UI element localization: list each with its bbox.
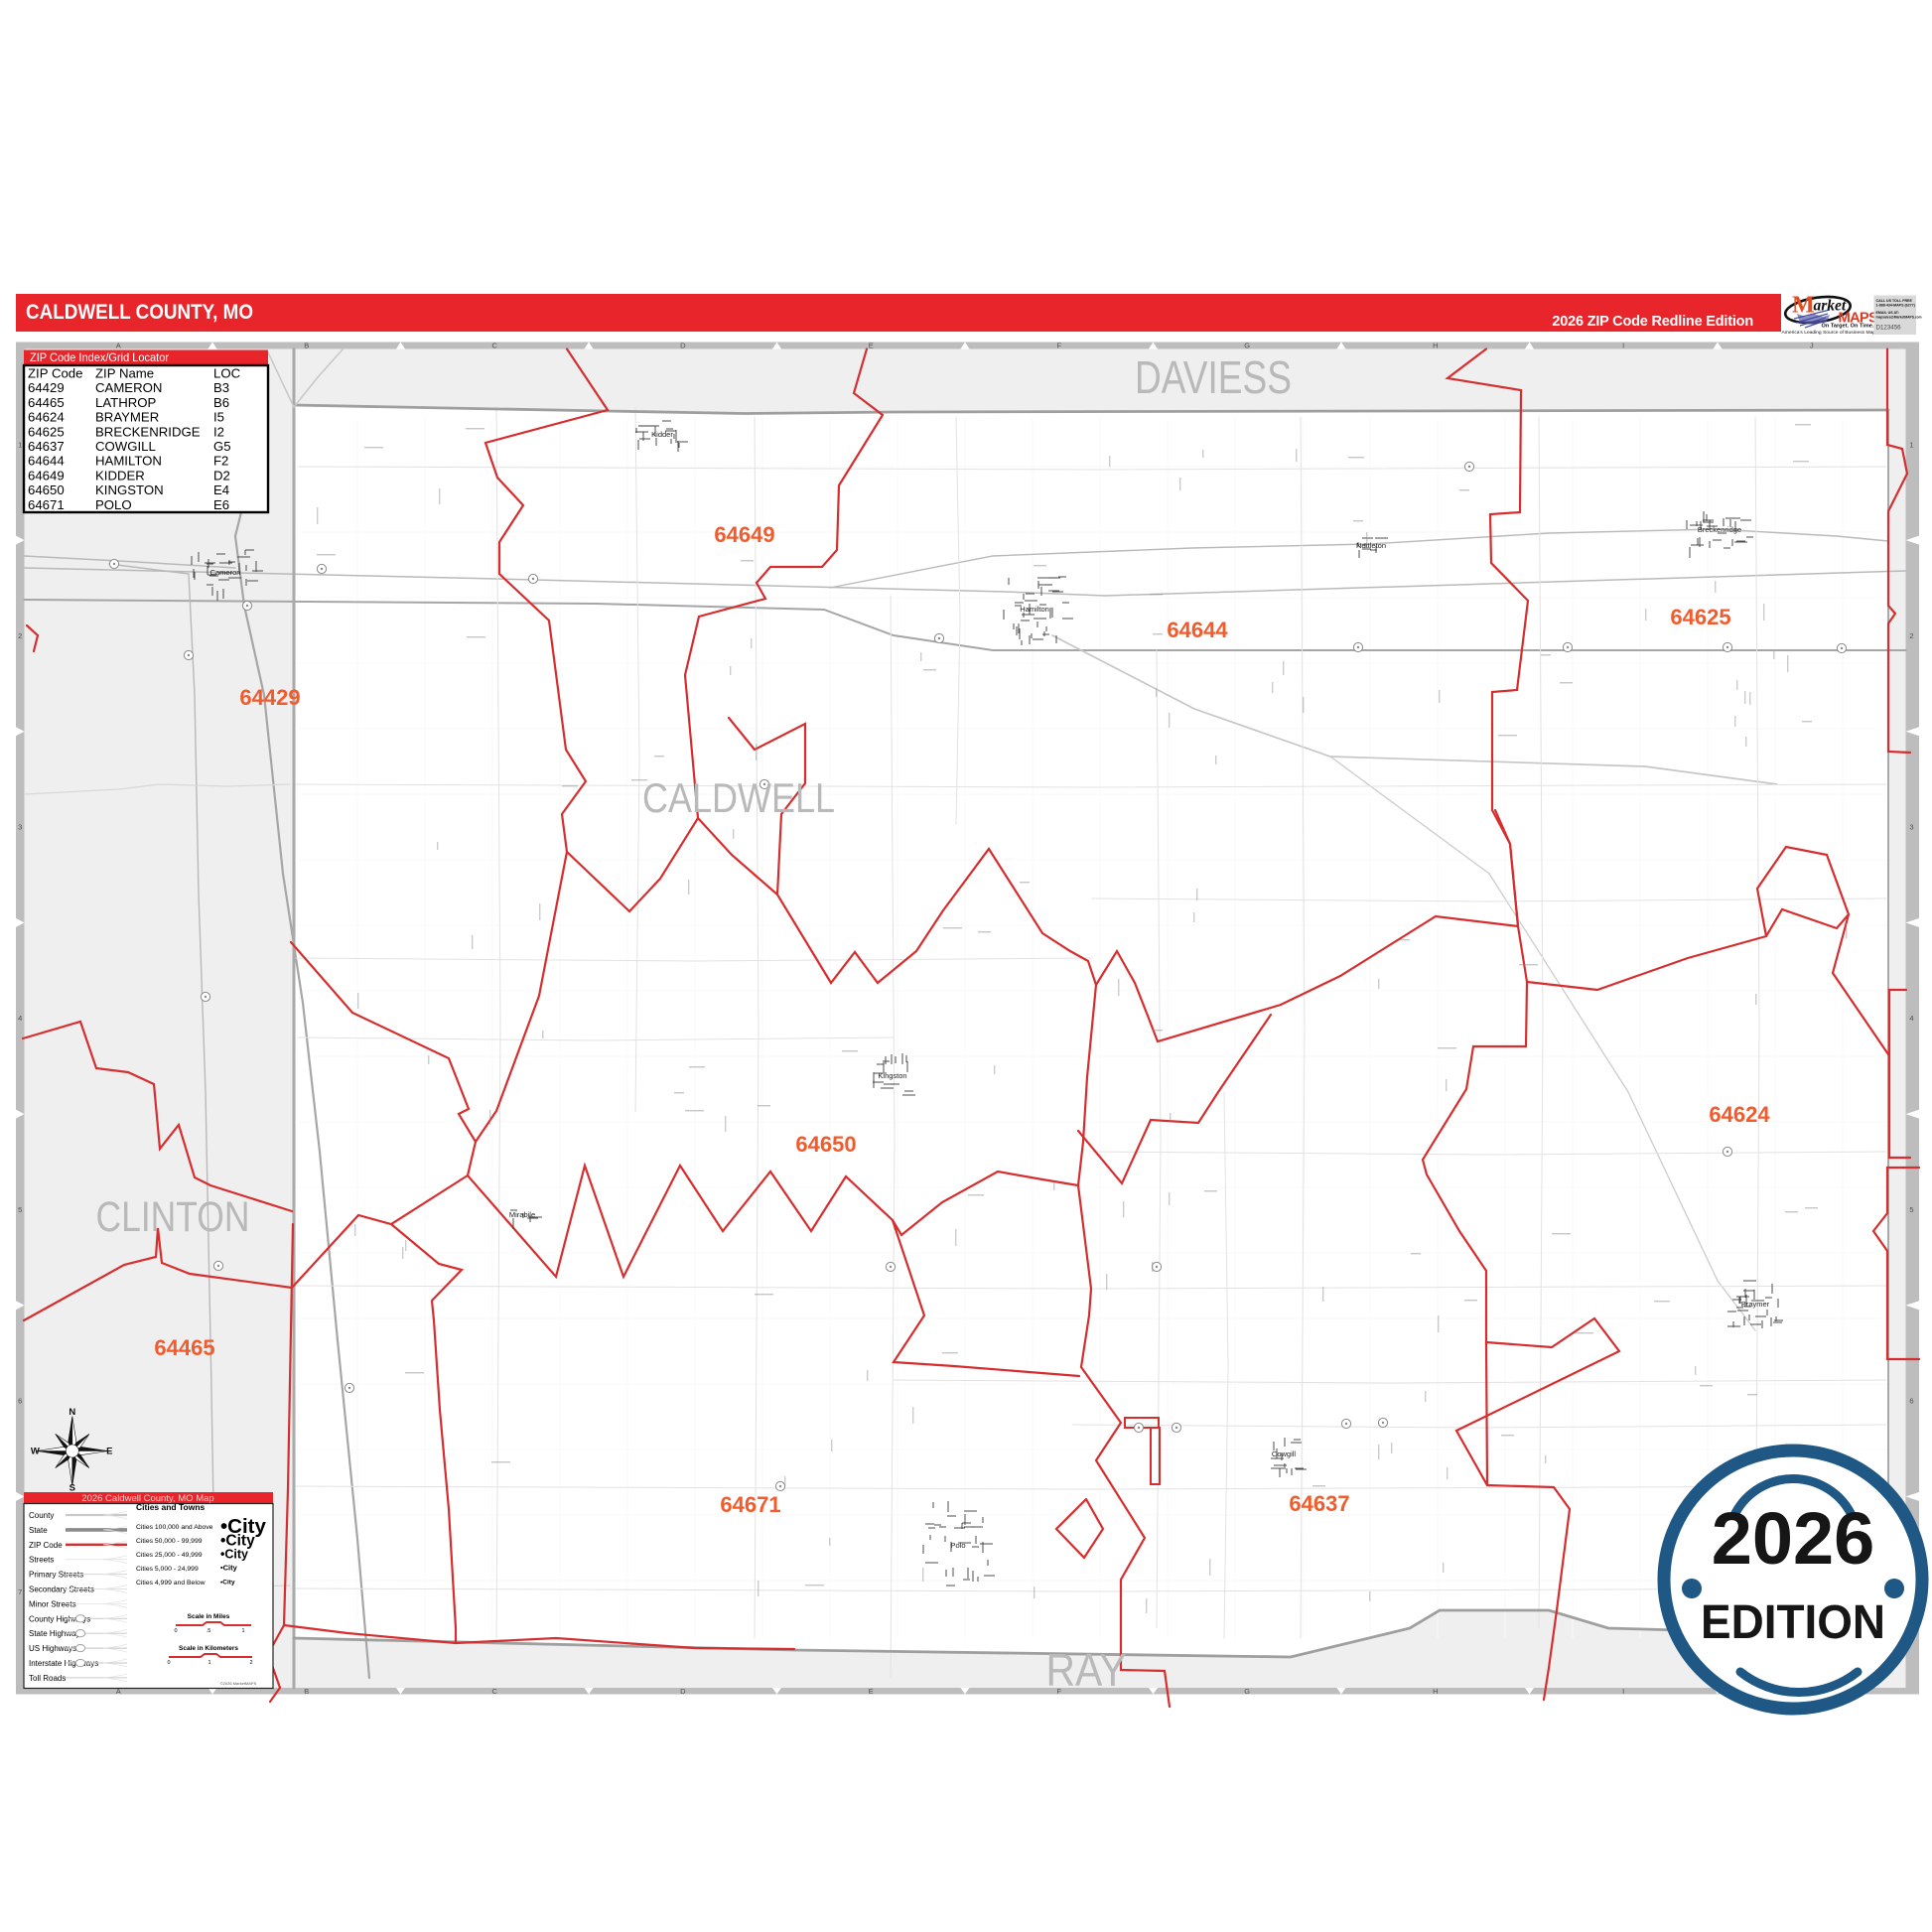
svg-text:Mirabile: Mirabile bbox=[509, 1210, 535, 1219]
svg-text:Cities and Towns: Cities and Towns bbox=[136, 1502, 206, 1512]
svg-text:•City: •City bbox=[220, 1579, 235, 1586]
svg-text:Polo: Polo bbox=[950, 1541, 965, 1550]
svg-text:Kidder: Kidder bbox=[651, 430, 673, 439]
svg-text:.5: .5 bbox=[207, 1628, 211, 1634]
svg-text:BRAYMER: BRAYMER bbox=[95, 410, 159, 425]
svg-text:A: A bbox=[116, 342, 121, 350]
svg-text:I2: I2 bbox=[213, 424, 224, 439]
svg-text:64649: 64649 bbox=[714, 522, 774, 547]
svg-text:HAMILTON: HAMILTON bbox=[95, 454, 162, 469]
svg-text:KINGSTON: KINGSTON bbox=[95, 483, 164, 497]
svg-text:1: 1 bbox=[207, 1660, 210, 1666]
svg-text:I5: I5 bbox=[213, 410, 224, 425]
svg-text:Cowgill: Cowgill bbox=[1272, 1449, 1297, 1458]
svg-text:7: 7 bbox=[18, 1587, 22, 1596]
svg-text:F: F bbox=[1057, 342, 1062, 350]
svg-text:CALL US TOLL FREE: CALL US TOLL FREE bbox=[1876, 299, 1913, 303]
svg-text:H: H bbox=[1433, 1687, 1438, 1696]
svg-text:G: G bbox=[1244, 1687, 1250, 1696]
svg-text:ZIP Code: ZIP Code bbox=[29, 1541, 63, 1550]
svg-text:LOC: LOC bbox=[213, 366, 241, 381]
svg-text:G: G bbox=[1244, 342, 1250, 350]
svg-text:LATHROP: LATHROP bbox=[95, 395, 157, 410]
svg-text:64649: 64649 bbox=[28, 468, 65, 483]
svg-text:mapsales@MarketMAPS.com: mapsales@MarketMAPS.com bbox=[1876, 316, 1922, 320]
svg-text:64625: 64625 bbox=[28, 424, 65, 439]
svg-text:E: E bbox=[869, 1687, 874, 1696]
svg-text:ZIP Name: ZIP Name bbox=[95, 366, 154, 381]
svg-text:4: 4 bbox=[1909, 1014, 1913, 1023]
svg-text:64650: 64650 bbox=[28, 483, 65, 497]
svg-text:E6: E6 bbox=[213, 497, 229, 512]
svg-text:Cities 100,000 and Above: Cities 100,000 and Above bbox=[136, 1524, 213, 1531]
svg-text:Streets: Streets bbox=[29, 1556, 54, 1565]
svg-text:Breckenridge: Breckenridge bbox=[1698, 525, 1741, 534]
svg-text:4: 4 bbox=[18, 1014, 22, 1023]
svg-text:2026 ZIP Code Redline Edition: 2026 ZIP Code Redline Edition bbox=[1552, 314, 1753, 330]
svg-text:F2: F2 bbox=[213, 454, 228, 469]
svg-text:3: 3 bbox=[18, 823, 22, 832]
svg-text:B: B bbox=[304, 1687, 309, 1696]
svg-text:J: J bbox=[1810, 342, 1814, 350]
svg-text:E: E bbox=[869, 342, 874, 350]
svg-text:•City: •City bbox=[220, 1564, 238, 1573]
svg-text:64624: 64624 bbox=[1709, 1102, 1770, 1127]
svg-text:State: State bbox=[29, 1526, 48, 1535]
svg-text:5: 5 bbox=[1909, 1205, 1913, 1214]
svg-text:Nettleton: Nettleton bbox=[1356, 541, 1386, 550]
svg-text:5: 5 bbox=[18, 1205, 22, 1214]
svg-text:CALDWELL COUNTY, MO: CALDWELL COUNTY, MO bbox=[26, 301, 253, 324]
svg-text:©2026 MarketMAPS: ©2026 MarketMAPS bbox=[220, 1681, 257, 1686]
svg-text:ZIP Code: ZIP Code bbox=[28, 366, 82, 381]
svg-text:E4: E4 bbox=[213, 483, 229, 497]
svg-text:Scale in Kilometers: Scale in Kilometers bbox=[179, 1645, 238, 1652]
svg-text:2: 2 bbox=[18, 631, 22, 640]
svg-text:D: D bbox=[680, 1687, 686, 1696]
svg-text:•City: •City bbox=[220, 1547, 248, 1561]
svg-text:F: F bbox=[1057, 1687, 1062, 1696]
svg-text:B: B bbox=[304, 342, 309, 350]
svg-text:CALDWELL: CALDWELL bbox=[642, 774, 835, 821]
svg-text:CAMERON: CAMERON bbox=[95, 380, 162, 395]
svg-text:Braymer: Braymer bbox=[1741, 1300, 1770, 1309]
svg-text:KIDDER: KIDDER bbox=[95, 468, 145, 483]
svg-text:64637: 64637 bbox=[28, 439, 65, 454]
svg-text:N: N bbox=[69, 1407, 75, 1418]
svg-text:64671: 64671 bbox=[720, 1492, 780, 1517]
svg-text:3: 3 bbox=[1909, 823, 1913, 832]
svg-text:D2: D2 bbox=[213, 468, 230, 483]
svg-text:64650: 64650 bbox=[795, 1132, 856, 1157]
svg-text:B6: B6 bbox=[213, 395, 229, 410]
svg-text:Scale in Miles: Scale in Miles bbox=[188, 1613, 230, 1620]
svg-text:64625: 64625 bbox=[1670, 605, 1730, 629]
svg-text:I: I bbox=[1622, 342, 1624, 350]
svg-text:D123456: D123456 bbox=[1876, 325, 1902, 332]
svg-text:DAVIESS: DAVIESS bbox=[1135, 351, 1292, 403]
svg-text:6: 6 bbox=[1909, 1397, 1913, 1406]
svg-text:C: C bbox=[491, 1687, 497, 1696]
svg-text:64644: 64644 bbox=[1167, 618, 1228, 642]
svg-text:2: 2 bbox=[249, 1660, 252, 1666]
svg-text:64429: 64429 bbox=[28, 380, 65, 395]
svg-text:Cities 25,000 - 49,999: Cities 25,000 - 49,999 bbox=[136, 1552, 203, 1559]
svg-text:BRECKENRIDGE: BRECKENRIDGE bbox=[95, 424, 201, 439]
svg-text:0: 0 bbox=[174, 1628, 177, 1634]
svg-text:M: M bbox=[1792, 293, 1815, 319]
svg-text:B3: B3 bbox=[213, 380, 229, 395]
svg-text:1: 1 bbox=[18, 440, 22, 449]
svg-text:64465: 64465 bbox=[154, 1335, 214, 1360]
svg-text:Cities 50,000 - 99,999: Cities 50,000 - 99,999 bbox=[136, 1538, 203, 1545]
svg-text:County: County bbox=[29, 1511, 54, 1520]
svg-text:6: 6 bbox=[18, 1397, 22, 1406]
svg-text:64671: 64671 bbox=[28, 497, 65, 512]
svg-text:I: I bbox=[1622, 1687, 1624, 1696]
svg-text:E: E bbox=[106, 1447, 112, 1457]
svg-text:ZIP Code Index/Grid Locator: ZIP Code Index/Grid Locator bbox=[30, 350, 169, 364]
svg-text:G5: G5 bbox=[213, 439, 231, 454]
svg-text:1: 1 bbox=[241, 1628, 244, 1634]
svg-text:Cameron: Cameron bbox=[210, 568, 241, 577]
svg-text:America's Leading Source of Bu: America's Leading Source of Business Map… bbox=[1782, 330, 1878, 336]
svg-text:COWGILL: COWGILL bbox=[95, 439, 156, 454]
svg-text:64429: 64429 bbox=[239, 685, 300, 710]
svg-text:Kingston: Kingston bbox=[878, 1071, 906, 1080]
svg-text:EDITION: EDITION bbox=[1701, 1596, 1885, 1649]
svg-text:Cities 5,000 - 24,999: Cities 5,000 - 24,999 bbox=[136, 1566, 199, 1573]
svg-text:64465: 64465 bbox=[28, 395, 65, 410]
svg-text:1-888-434-MAPS (6277): 1-888-434-MAPS (6277) bbox=[1876, 304, 1916, 308]
svg-text:D: D bbox=[680, 342, 686, 350]
svg-text:S: S bbox=[69, 1483, 75, 1494]
svg-text:EMAIL US AT:: EMAIL US AT: bbox=[1876, 311, 1899, 315]
svg-text:Hamilton: Hamilton bbox=[1020, 605, 1049, 614]
svg-text:CLINTON: CLINTON bbox=[96, 1193, 250, 1241]
svg-text:POLO: POLO bbox=[95, 497, 132, 512]
svg-text:Toll Roads: Toll Roads bbox=[29, 1674, 66, 1683]
svg-text:64637: 64637 bbox=[1289, 1491, 1349, 1516]
svg-text:1: 1 bbox=[1909, 440, 1913, 449]
svg-text:0: 0 bbox=[167, 1660, 170, 1666]
svg-text:Minor Streets: Minor Streets bbox=[29, 1599, 76, 1608]
svg-text:64624: 64624 bbox=[28, 410, 65, 425]
svg-text:H: H bbox=[1433, 342, 1438, 350]
svg-text:64644: 64644 bbox=[28, 454, 65, 469]
svg-text:On Target. On Time.: On Target. On Time. bbox=[1822, 324, 1874, 330]
svg-text:2: 2 bbox=[1909, 631, 1913, 640]
svg-text:C: C bbox=[491, 342, 497, 350]
svg-text:W: W bbox=[31, 1447, 40, 1457]
svg-text:2026: 2026 bbox=[1712, 1497, 1875, 1580]
svg-text:Cities 4,999 and Below: Cities 4,999 and Below bbox=[136, 1580, 206, 1587]
